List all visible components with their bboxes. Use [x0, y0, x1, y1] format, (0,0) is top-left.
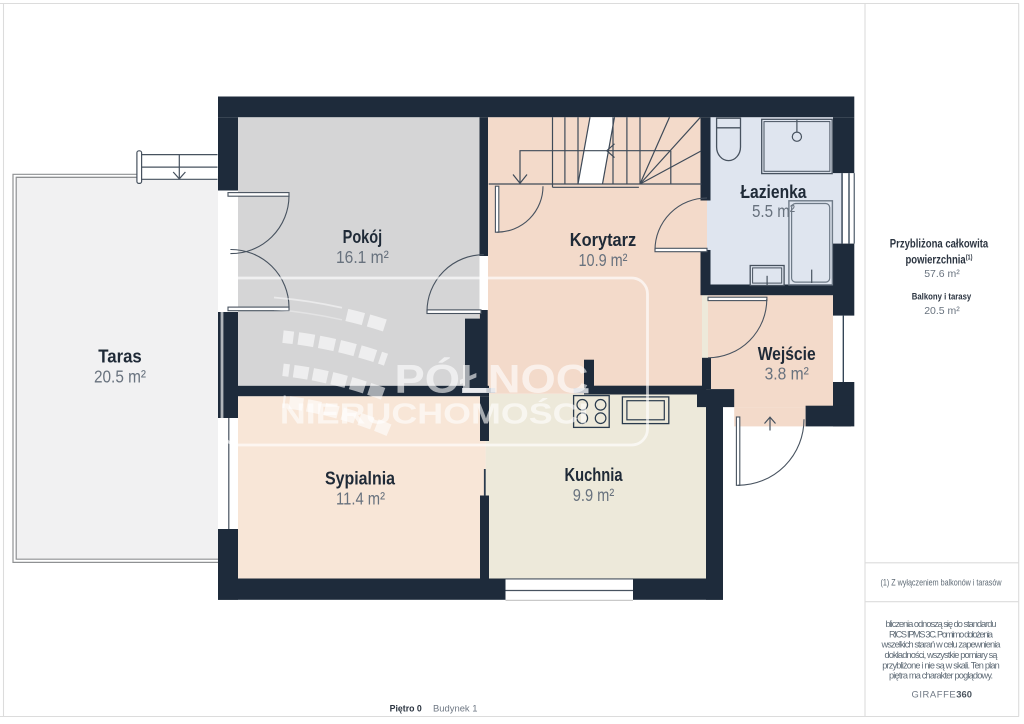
svg-text:NIERUCHOMOŚCI: NIERUCHOMOŚCI [280, 396, 589, 430]
svg-text:Pokój: Pokój [343, 227, 383, 247]
svg-text:Korytarz: Korytarz [570, 230, 637, 250]
svg-text:przybliżone i nie są w skali.: przybliżone i nie są w skali. Ten plan [882, 660, 1000, 670]
svg-text:(1) Z wyłączeniem balkonów i t: (1) Z wyłączeniem balkonów i tarasów [881, 578, 1002, 588]
svg-text:piętra ma charakter poglądowy.: piętra ma charakter poglądowy. [889, 671, 993, 681]
svg-text:Sypialnia: Sypialnia [325, 469, 396, 489]
svg-text:Łazienka: Łazienka [741, 182, 808, 202]
svg-text:dokładności, wszystkie pomiary: dokładności, wszystkie pomiary są [885, 650, 999, 660]
svg-text:57.6 m²: 57.6 m² [924, 268, 960, 280]
svg-text:3.8 m²: 3.8 m² [765, 363, 809, 383]
svg-text:Wejście: Wejście [758, 344, 816, 364]
svg-text:Piętro 0: Piętro 0 [390, 704, 422, 714]
svg-text:bliczenia odnoszą się do stand: bliczenia odnoszą się do standardu [886, 619, 997, 629]
svg-text:Taras: Taras [98, 347, 142, 367]
svg-text:Kuchnia: Kuchnia [565, 465, 624, 485]
svg-text:9.9 m²: 9.9 m² [573, 485, 615, 505]
svg-text:powierzchnia(1): powierzchnia(1) [906, 253, 973, 267]
svg-text:Budynek 1: Budynek 1 [433, 704, 478, 714]
svg-text:5.5 m²: 5.5 m² [752, 201, 795, 221]
svg-text:Przybliżona całkowita: Przybliżona całkowita [890, 237, 989, 251]
svg-text:RICS IPMS 3C. Pomimo dołożenia: RICS IPMS 3C. Pomimo dołożenia [889, 629, 994, 639]
svg-text:20.5 m²: 20.5 m² [924, 305, 960, 317]
svg-text:PÓŁNOC: PÓŁNOC [395, 357, 589, 401]
svg-text:GIRAFFE360: GIRAFFE360 [911, 688, 971, 699]
svg-text:Balkony i tarasy: Balkony i tarasy [912, 292, 972, 302]
svg-text:10.9 m²: 10.9 m² [579, 250, 628, 270]
svg-text:16.1 m²: 16.1 m² [336, 247, 389, 267]
svg-text:wszelkich starań w celu zapewn: wszelkich starań w celu zapewnienia [881, 640, 1002, 650]
svg-text:20.5 m²: 20.5 m² [94, 367, 146, 387]
svg-text:11.4 m²: 11.4 m² [336, 489, 385, 509]
